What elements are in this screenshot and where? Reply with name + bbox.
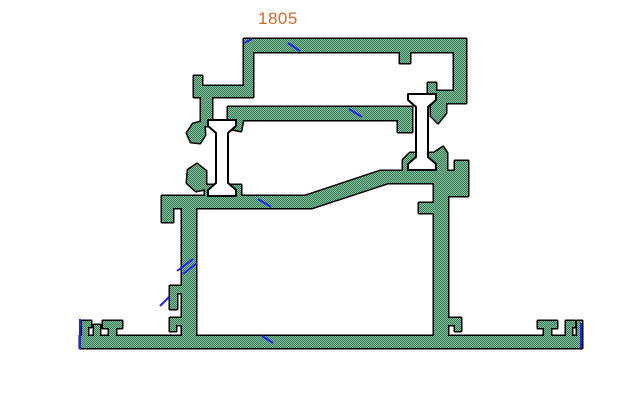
profile-fill-pass	[80, 39, 582, 348]
profile-number-label: 1805	[258, 9, 298, 28]
tick-mark-wall-hook	[160, 297, 169, 306]
profile-cross-section-svg: 1805	[0, 0, 637, 409]
drawing-canvas: 1805	[0, 0, 637, 409]
